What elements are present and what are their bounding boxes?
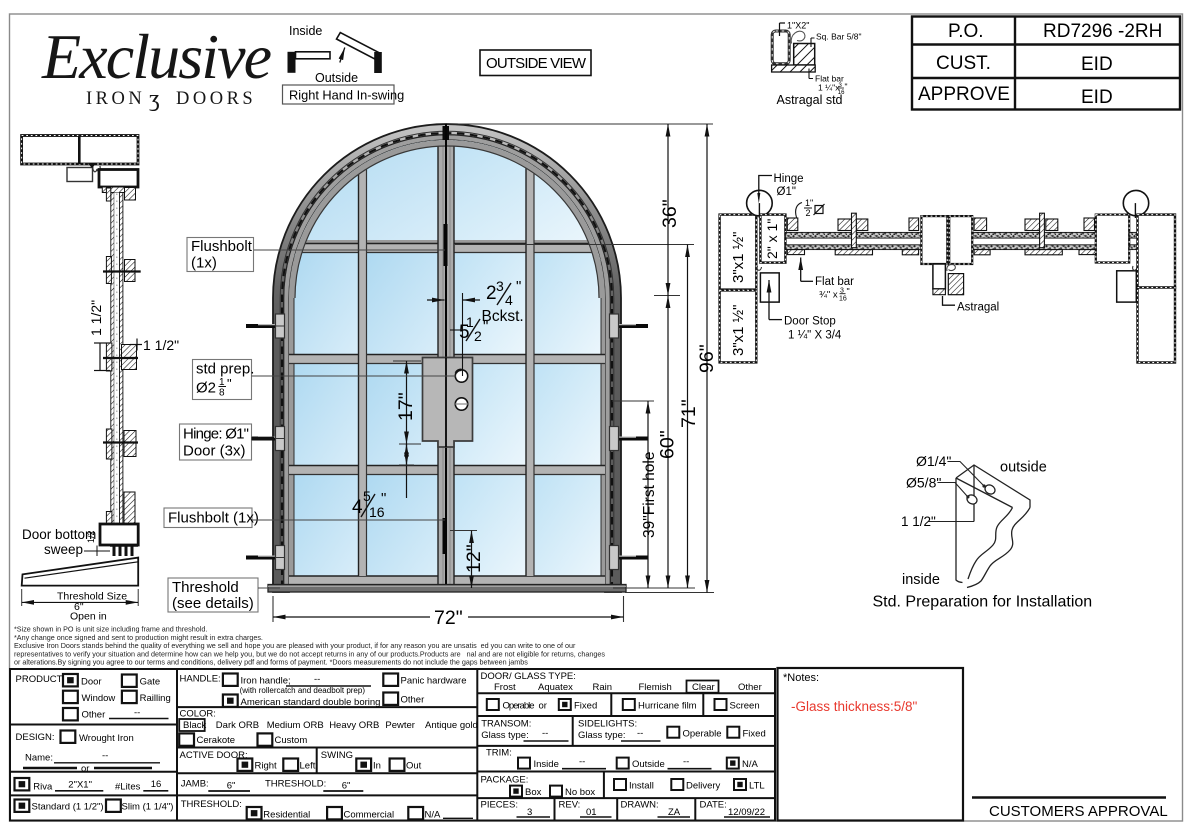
svg-text:outside: outside (1000, 460, 1047, 476)
svg-text:16: 16 (151, 779, 162, 790)
svg-text:Name:: Name: (25, 753, 53, 764)
svg-text:OUTSIDE VIEW: OUTSIDE VIEW (486, 55, 587, 72)
svg-text:Panic hardware: Panic hardware (401, 676, 467, 687)
svg-text:Ø2: Ø2 (196, 380, 216, 397)
svg-text:--: -- (579, 757, 585, 768)
svg-text:Inside: Inside (289, 24, 322, 38)
svg-text:Screen: Screen (730, 701, 760, 712)
svg-text:-Glass thickness:5/8": -Glass thickness:5/8" (791, 699, 918, 714)
svg-text:3"x1 ½": 3"x1 ½" (730, 231, 747, 283)
svg-text:REV:: REV: (559, 800, 581, 811)
svg-text:Glass type:: Glass type: (578, 730, 626, 741)
svg-text:Open in: Open in (70, 611, 107, 623)
svg-text:Exclusive: Exclusive (41, 21, 272, 92)
svg-text:Right: Right (255, 761, 278, 772)
svg-text:--: -- (134, 708, 140, 719)
svg-text:Threshold: Threshold (172, 579, 239, 596)
svg-text:Door: Door (81, 677, 102, 688)
svg-text:Fixed: Fixed (743, 729, 766, 740)
svg-text:Wrought Iron: Wrought Iron (79, 733, 134, 744)
svg-text:--: -- (102, 751, 108, 762)
svg-text:American standard double borin: American standard double boring (241, 697, 381, 708)
svg-text:Astragal: Astragal (957, 302, 999, 314)
svg-text:DRAWN:: DRAWN: (621, 800, 659, 811)
svg-text:Right Hand In-swing: Right Hand In-swing (289, 88, 404, 103)
svg-text:or: or (81, 764, 89, 775)
svg-text:ʒ: ʒ (149, 86, 160, 112)
svg-text:TRANSOM:: TRANSOM: (481, 719, 531, 730)
svg-text:2: 2 (486, 283, 497, 304)
svg-text:6": 6" (227, 781, 236, 792)
svg-text:DOOR/ GLASS TYPE:: DOOR/ GLASS TYPE: (481, 671, 576, 682)
svg-text:P.O.: P.O. (948, 21, 984, 42)
svg-text:N/A: N/A (742, 759, 759, 770)
svg-text:sweep: sweep (44, 542, 83, 557)
svg-text:SIDELIGHTS:: SIDELIGHTS: (578, 719, 637, 730)
svg-text:Outside: Outside (315, 71, 358, 85)
svg-text:TRIM:: TRIM: (486, 748, 512, 759)
svg-text:IRON: IRON (86, 89, 145, 109)
svg-text:": " (483, 318, 488, 335)
svg-text:3: 3 (496, 278, 504, 294)
svg-text:Rain: Rain (593, 682, 613, 693)
svg-text:Clear: Clear (692, 682, 715, 693)
svg-text:Flushbolt (1x): Flushbolt (1x) (168, 510, 259, 527)
svg-text:No box: No box (565, 787, 595, 798)
svg-text:Standard (1 1/2"): Standard (1 1/2") (32, 802, 104, 813)
svg-text:Inside: Inside (534, 759, 559, 770)
svg-text:1/2: 1/2 (86, 530, 96, 543)
svg-text:Antique gold: Antique gold (425, 720, 478, 731)
svg-text:inside: inside (902, 572, 940, 588)
svg-text:Railling: Railling (140, 693, 171, 704)
svg-text:SWING: SWING (321, 750, 353, 761)
svg-text:36": 36" (659, 199, 681, 228)
svg-text:Slim (1 1/4"): Slim (1 1/4") (122, 802, 174, 813)
svg-text:JAMB:: JAMB: (181, 779, 209, 790)
svg-text:Left: Left (300, 761, 316, 772)
svg-text:APPROVE: APPROVE (918, 84, 1010, 105)
svg-text:Residential: Residential (263, 810, 310, 821)
svg-text:1: 1 (466, 314, 474, 330)
svg-text:PIECES:: PIECES: (481, 800, 519, 811)
svg-text:Ø1": Ø1" (777, 186, 796, 198)
svg-text:": " (381, 490, 386, 507)
svg-text:PACKAGE:: PACKAGE: (481, 775, 529, 786)
svg-text:Pewter: Pewter (385, 720, 415, 731)
svg-text:Other: Other (401, 695, 425, 706)
svg-text:": " (847, 287, 850, 297)
svg-text:THRESHOLD:: THRESHOLD: (265, 779, 326, 790)
svg-text:Custom: Custom (275, 735, 308, 746)
svg-text:96": 96" (696, 344, 718, 373)
svg-text:CUSTOMERS APPROVAL: CUSTOMERS APPROVAL (989, 803, 1168, 820)
svg-text:Outside: Outside (632, 759, 665, 770)
svg-text:Hinge: Hinge (774, 173, 804, 185)
svg-text:Riva: Riva (33, 782, 53, 793)
svg-text:--: -- (637, 728, 643, 739)
svg-text:Glass type:: Glass type: (481, 730, 529, 741)
svg-text:6": 6" (342, 781, 351, 792)
svg-text:Sq. Bar 5/8": Sq. Bar 5/8" (816, 32, 862, 42)
svg-text:or alterations.By signing you: or alterations.By signing you agree to o… (14, 658, 528, 667)
svg-text:": " (227, 376, 232, 391)
svg-text:--: -- (683, 757, 689, 768)
svg-text:Out: Out (406, 761, 422, 772)
svg-text:In: In (373, 761, 381, 772)
svg-text:4: 4 (505, 292, 513, 308)
svg-text:DESIGN:: DESIGN: (16, 732, 55, 743)
svg-text:1 1/2": 1 1/2" (88, 300, 104, 336)
svg-text:1 ¼" X 3/4: 1 ¼" X 3/4 (788, 330, 842, 342)
svg-text:THRESHOLD:: THRESHOLD: (181, 799, 242, 810)
svg-text:Dark ORB: Dark ORB (216, 720, 259, 731)
svg-text:": " (516, 278, 521, 295)
svg-text:8: 8 (219, 388, 225, 399)
svg-text:71": 71" (678, 399, 700, 428)
svg-text:Window: Window (82, 693, 116, 704)
svg-text:Cerakote: Cerakote (197, 735, 236, 746)
svg-text:72": 72" (434, 607, 463, 629)
svg-text:2" x 1": 2" x 1" (764, 219, 780, 259)
svg-text:Hurricane film: Hurricane film (638, 701, 697, 712)
svg-text:Aquatex: Aquatex (538, 682, 573, 693)
svg-text:Frost: Frost (494, 682, 516, 693)
svg-text:(with rollercatch and deadbolt: (with rollercatch and deadbolt prep) (240, 686, 366, 695)
svg-text:*Notes:: *Notes: (783, 672, 819, 684)
svg-text:Flemish: Flemish (639, 682, 672, 693)
svg-text:#Lites: #Lites (115, 782, 141, 793)
svg-text:(see details): (see details) (172, 595, 254, 612)
svg-text:CUST.: CUST. (936, 53, 991, 74)
svg-text:RD7296 -2RH: RD7296 -2RH (1043, 21, 1162, 42)
svg-text:PRODUCT:: PRODUCT: (16, 674, 65, 685)
svg-text:Other: Other (738, 682, 762, 693)
svg-text:Other: Other (82, 710, 106, 721)
svg-text:Astragal std: Astragal std (777, 93, 843, 107)
svg-text:(1x): (1x) (191, 255, 217, 272)
svg-text:EID: EID (1081, 54, 1113, 75)
svg-text:Iron handle;: Iron handle; (241, 676, 291, 687)
svg-text:HANDLE:: HANDLE: (180, 674, 221, 685)
svg-text:Delivery: Delivery (686, 781, 721, 792)
svg-text:Commercial: Commercial (344, 810, 395, 821)
svg-text:--: -- (542, 728, 548, 739)
svg-text:Threshold Size: Threshold Size (57, 591, 127, 603)
svg-text:¾" x: ¾" x (819, 290, 838, 301)
svg-text:Flushbolt: Flushbolt (191, 238, 253, 255)
svg-text:1 1/2": 1 1/2" (143, 337, 179, 353)
svg-text:3"x1 ½": 3"x1 ½" (730, 304, 747, 356)
svg-text:EID: EID (1081, 87, 1113, 108)
svg-text:Gate: Gate (140, 677, 161, 688)
svg-text:Box: Box (525, 787, 542, 798)
svg-text:1": 1" (805, 198, 813, 208)
svg-text:--: -- (314, 674, 320, 685)
svg-text:Operable: Operable (503, 701, 535, 712)
svg-text:N/A: N/A (425, 810, 442, 821)
svg-text:LTL: LTL (749, 781, 765, 792)
svg-text:2: 2 (806, 208, 811, 218)
svg-text:DOORS: DOORS (176, 89, 256, 109)
svg-text:Heavy ORB: Heavy ORB (329, 720, 379, 731)
svg-text:Door Stop: Door Stop (784, 316, 836, 328)
svg-text:Operable: Operable (683, 729, 722, 740)
svg-text:": " (845, 82, 848, 92)
svg-text:Black: Black (183, 720, 206, 731)
svg-text:Install: Install (629, 781, 654, 792)
svg-text:4: 4 (352, 497, 363, 518)
svg-text:1"X2": 1"X2" (787, 21, 809, 31)
svg-text:Door (3x): Door (3x) (183, 443, 246, 460)
svg-text:60": 60" (657, 430, 679, 459)
svg-text:17": 17" (395, 392, 417, 421)
svg-text:16: 16 (839, 296, 847, 303)
svg-text:Ø5/8": Ø5/8" (906, 475, 941, 491)
svg-text:12": 12" (463, 544, 485, 573)
svg-text:COLOR:: COLOR: (180, 709, 216, 720)
svg-text:Hinge: Ø1": Hinge: Ø1" (183, 426, 249, 443)
svg-text:DATE:: DATE: (700, 800, 727, 811)
svg-text:39"First hole: 39"First hole (641, 452, 658, 538)
svg-text:Std. Preparation for Installat: Std. Preparation for Installation (873, 594, 1093, 611)
svg-text:Ø1/4": Ø1/4" (916, 453, 951, 469)
svg-text:2"X1": 2"X1" (68, 780, 92, 791)
svg-text:2: 2 (474, 328, 482, 344)
svg-text:Fixed: Fixed (574, 701, 597, 712)
svg-text:Medium ORB: Medium ORB (267, 720, 324, 731)
svg-text:or: or (539, 701, 547, 712)
svg-text:std prep.: std prep. (196, 361, 254, 378)
